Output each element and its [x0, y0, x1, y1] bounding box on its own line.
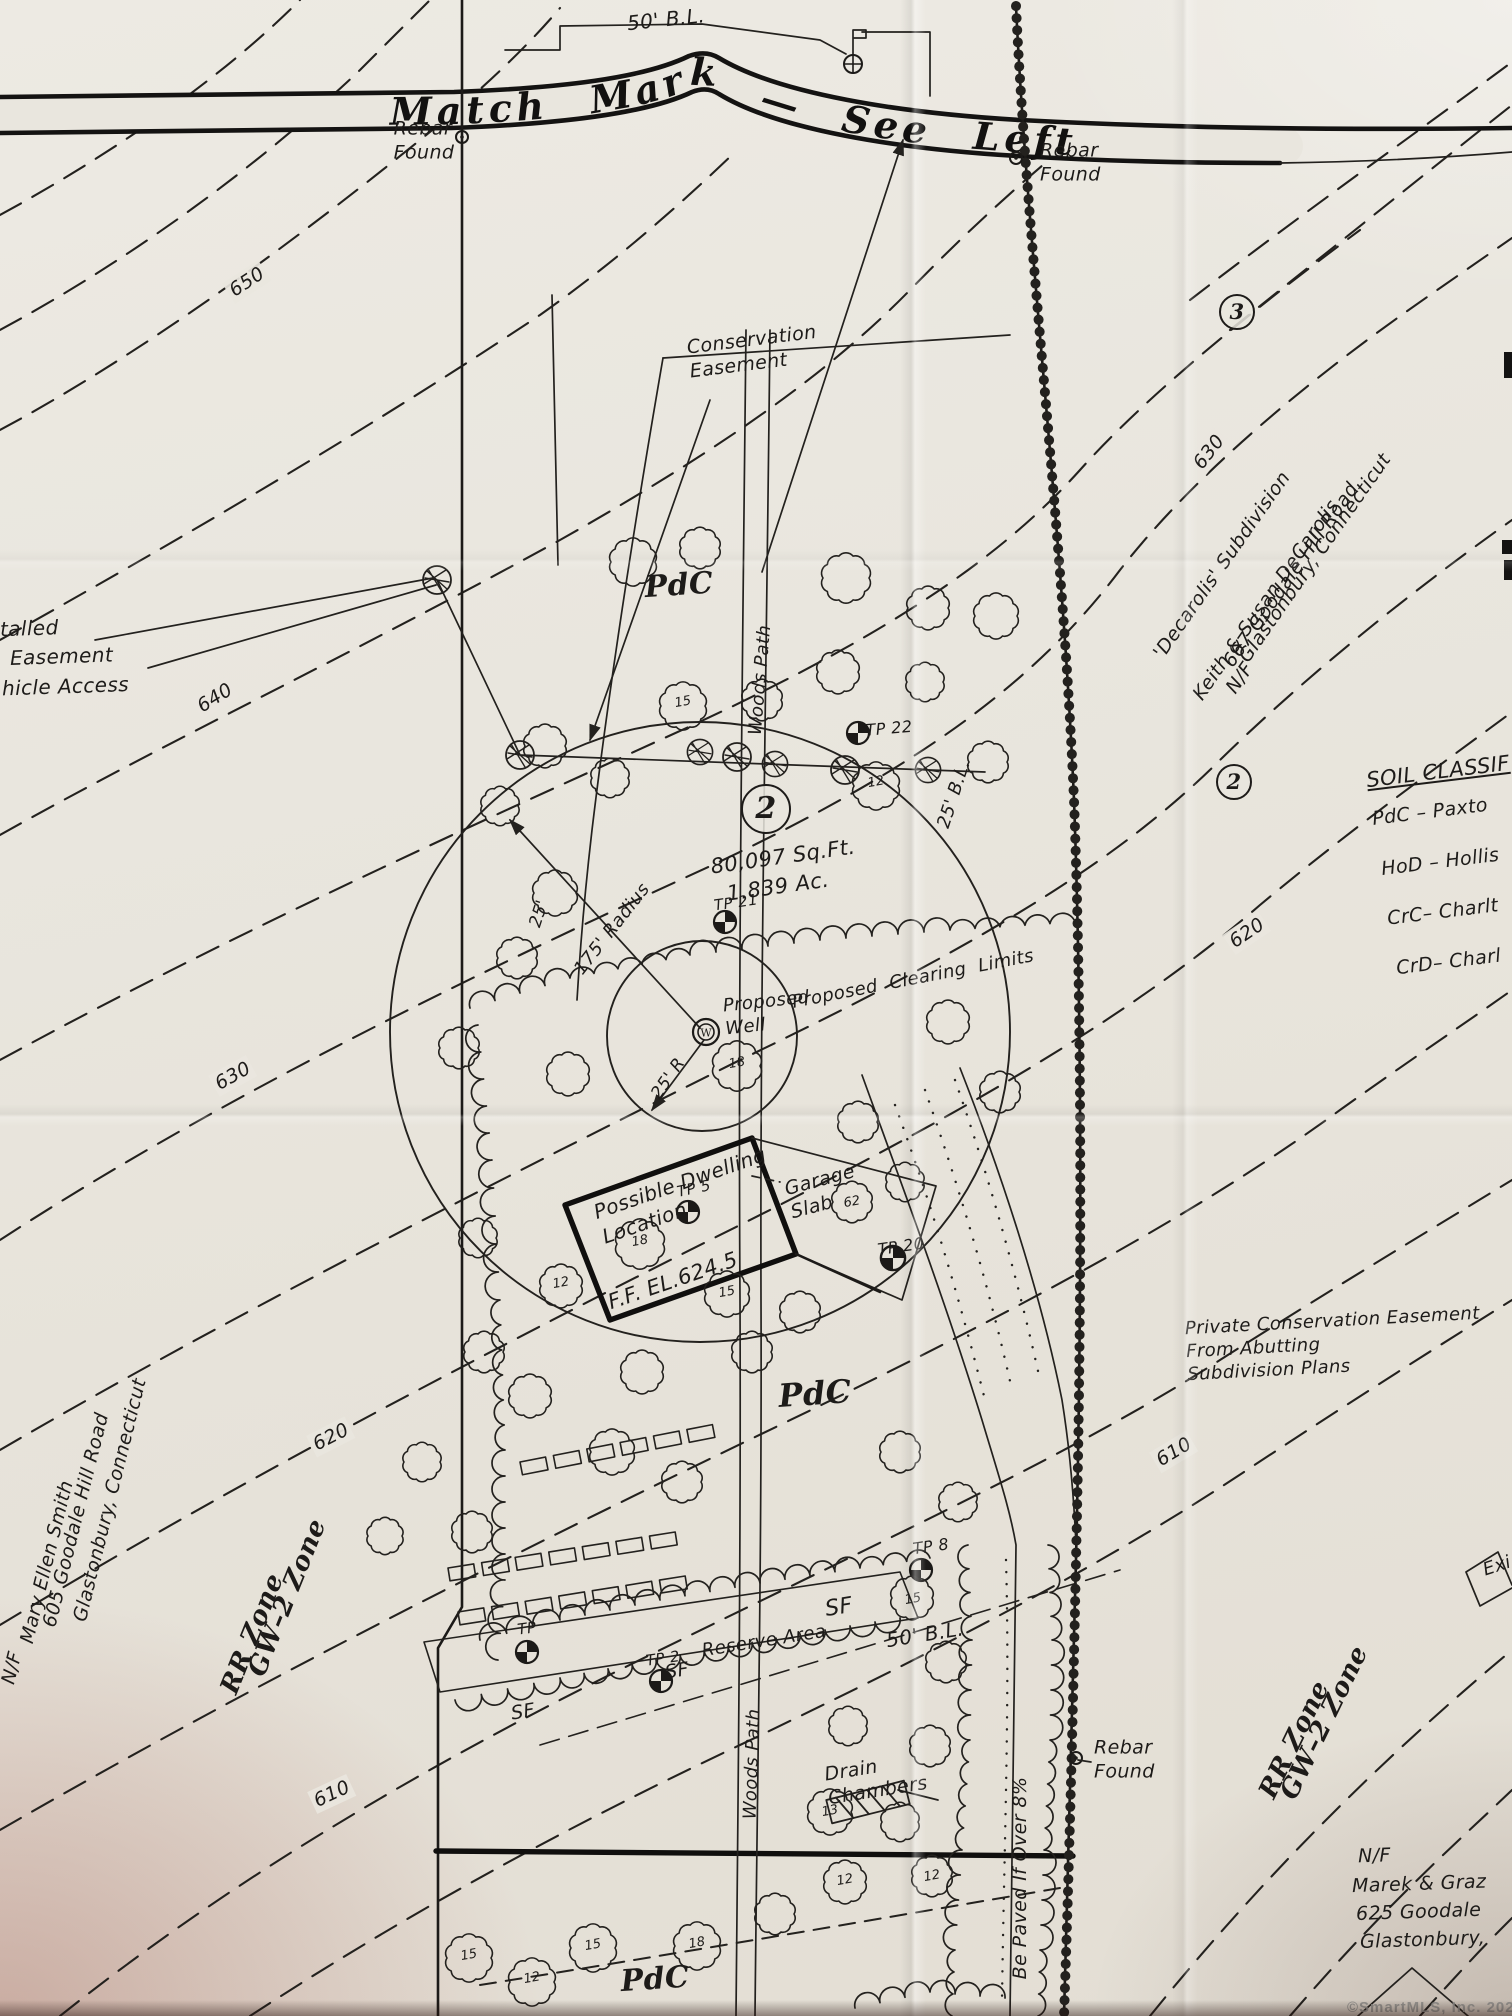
tree-size: 12: [551, 1274, 570, 1293]
label-marek: Marek & Graz: [1352, 1870, 1487, 1899]
well-symbol: W: [693, 1019, 719, 1045]
lot-number-2: 2: [741, 784, 791, 834]
tree-size: 15: [459, 1946, 478, 1965]
left-note-leaders: [95, 578, 436, 668]
smartmls-watermark: ©SmartMLS, Inc. 2025: [1347, 1998, 1512, 2016]
label-625-goodale: 625 Goodale: [1356, 1898, 1482, 1927]
label-glastonbury-south: Glastonbury,: [1360, 1926, 1486, 1955]
tree-size: 15: [673, 693, 692, 712]
tree-size: 18: [687, 1934, 706, 1953]
label-rebar-found-ne: Rebar Found: [1040, 139, 1101, 188]
label-woods-path-south: Woods Path: [739, 1708, 766, 1819]
label-tp-1: TP: [516, 1618, 538, 1640]
site-plan-sheet: Match Mark — See Left: [0, 0, 1512, 2016]
path-corridor-lines: [862, 1068, 1076, 2016]
label-rebar-found-nw: Rebar Found: [394, 117, 455, 166]
label-soil-pdc-mid: PdC: [777, 1371, 853, 1417]
label-be-paved: Be Paved If Over 8%: [1008, 1777, 1032, 1980]
tree-size: 12: [522, 1969, 541, 1988]
label-tp-22: TP 22: [865, 717, 913, 741]
tree-size: 15: [583, 1936, 602, 1955]
label-soil-pdc-north: PdC: [643, 564, 714, 607]
tree-size: 18: [630, 1232, 649, 1251]
lot-number-2-circle-east: 2: [1216, 764, 1252, 800]
label-proposed-well: Proposed Well: [722, 986, 813, 1041]
flag-marker: [844, 55, 862, 73]
tree-size: 15: [903, 1590, 922, 1609]
tree-size: 18: [727, 1054, 746, 1073]
match-mark-banner-text: Match Mark — See Left: [388, 49, 1079, 164]
svg-text:Match Mark — See Left: Match Mark — See Left: [388, 49, 1079, 164]
label-nf-south: N/F: [1358, 1843, 1392, 1868]
svg-text:W: W: [700, 1027, 712, 1040]
rebar-symbols: [456, 131, 1091, 1764]
label-sf-1: SF: [509, 1698, 536, 1726]
misc-fragments: [480, 352, 1512, 2016]
label-rebar-found-se: Rebar Found: [1094, 1736, 1155, 1785]
tree-size: 62: [842, 1193, 861, 1212]
label-sf-3: SF: [823, 1592, 854, 1624]
easement-lines: [552, 140, 1010, 1000]
fragment-talled: talled: [0, 615, 59, 643]
tree-size: 12: [866, 773, 885, 792]
lot-number-3-circle: 3: [1219, 294, 1255, 330]
tree-size: 12: [835, 1871, 854, 1890]
tree-size: 15: [717, 1283, 736, 1302]
fragment-vehicle-access: hicle Access: [2, 672, 130, 702]
tree-size: 12: [922, 1867, 941, 1886]
label-soil-pdc-south: PdC: [619, 1958, 690, 2001]
fragment-easement: Easement: [10, 642, 114, 671]
tree-size: 13: [820, 1802, 839, 1821]
